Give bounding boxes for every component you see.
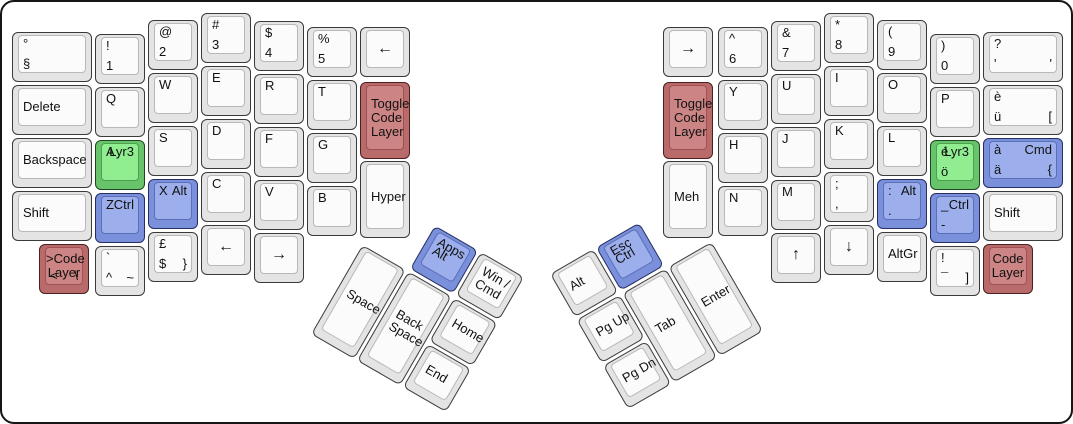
key-legend: % — [318, 32, 330, 46]
key-arrow-down-icon: ↓ — [845, 239, 853, 255]
key-arrow-left-inner-icon: ← — [377, 41, 393, 57]
key-legend: ` — [106, 251, 110, 265]
key-legend: è — [994, 90, 1001, 104]
key-legend: Delete — [23, 100, 61, 114]
keycap-surface: ← — [207, 228, 245, 266]
keycap-surface: C — [207, 175, 245, 213]
keycap-surface: $4 — [260, 24, 298, 62]
keycap-surface: ALyr3 — [101, 143, 139, 181]
key-section[interactable]: °§ — [12, 32, 92, 82]
keycap-surface: Win /Cmd — [465, 258, 517, 310]
keycap-surface: £$} — [154, 235, 192, 273]
key-legend: Pg Up — [594, 309, 632, 339]
keycap-surface: W — [154, 76, 192, 114]
key-legend: , — [835, 197, 839, 211]
key-legend: K — [835, 124, 844, 138]
key-legend: [ — [1048, 110, 1052, 124]
key-legend: Z — [106, 198, 114, 212]
keycap-surface: J — [777, 130, 815, 168]
keycap-surface: V — [260, 183, 298, 221]
keycap-surface: F — [260, 130, 298, 168]
key-l[interactable]: L — [877, 126, 927, 176]
keycap-surface: Shift — [989, 194, 1057, 232]
key-legend: CodeLayer — [990, 252, 1026, 280]
keycap-surface: H — [724, 136, 762, 174]
key-legend: Home — [449, 316, 486, 345]
key-legend: ToggleCodeLayer — [371, 97, 401, 139]
keycap-surface: N — [724, 189, 762, 227]
key-legend: $ — [159, 257, 166, 271]
keycap-surface: AltGr — [883, 235, 921, 273]
key-legend: 4 — [265, 46, 272, 60]
key-colon-alt[interactable]: :Alt. — [877, 179, 927, 229]
keycap-surface: S — [154, 129, 192, 167]
key-legend: - — [941, 218, 945, 232]
keycap-surface: ToggleCodeLayer — [366, 85, 404, 150]
key-altgr[interactable]: AltGr — [877, 232, 927, 282]
key-v[interactable]: V — [254, 180, 304, 230]
key-legend: 7 — [782, 46, 789, 60]
key-legend: C — [212, 177, 221, 191]
key-legend: P — [941, 92, 950, 106]
keycap-surface: ToggleCodeLayer — [669, 85, 707, 150]
keycap-surface: Meh — [669, 164, 707, 229]
key-legend: B — [318, 191, 327, 205]
keycap-surface: → — [669, 30, 707, 68]
key-legend: ö — [941, 165, 948, 179]
key-semicolon[interactable]: ;, — [824, 172, 874, 222]
key-legend: Alt — [901, 184, 916, 198]
key-legend: ^ — [106, 271, 112, 285]
keycap-surface: AppsAlt — [419, 231, 471, 283]
key-arrow-right-bottom-icon: → — [271, 247, 287, 263]
keycap-surface: E — [207, 69, 245, 107]
key-legend: 9 — [888, 45, 895, 59]
keycap-surface: @2 — [154, 23, 192, 61]
key-legend: Lyr3 — [109, 145, 134, 159]
key-legend: N — [729, 191, 738, 205]
key-arrow-right-bottom[interactable]: → — [254, 233, 304, 283]
key-legend: Y — [729, 85, 738, 99]
key-legend: _ — [941, 198, 948, 212]
key-legend: V — [265, 185, 274, 199]
keycap-surface: `^~ — [101, 249, 139, 287]
key-arrow-left-inner[interactable]: ← — [360, 27, 410, 77]
key-g[interactable]: G — [307, 133, 357, 183]
keycap-surface: P — [936, 90, 974, 128]
key-legend: ' — [1050, 57, 1052, 71]
keycap-surface: → — [260, 236, 298, 274]
keycap-surface: Alt — [557, 255, 609, 307]
key-delete[interactable]: Delete — [12, 85, 92, 135]
keycap-surface: Backspace — [18, 141, 86, 179]
key-underscore-ctrl[interactable]: _Ctrl- — [930, 193, 980, 243]
keycap-surface: D — [207, 122, 245, 160]
key-8[interactable]: *8 — [824, 13, 874, 63]
keycap-surface: %5 — [313, 30, 351, 68]
key-legend: D — [212, 124, 221, 138]
keycap-surface: &7 — [777, 24, 815, 62]
keycap-surface: T — [313, 83, 351, 121]
key-legend: Alt — [172, 184, 187, 198]
key-w[interactable]: W — [148, 73, 198, 123]
key-legend: 5 — [318, 52, 325, 66]
key-b[interactable]: B — [307, 186, 357, 236]
keycap-surface: Shift — [18, 194, 86, 232]
keyboard-canvas: °§DeleteBackspaceShift<\>CodeLayer!1QALy… — [0, 0, 1073, 424]
key-legend: W — [159, 78, 171, 92]
key-shift-left[interactable]: Shift — [12, 191, 92, 241]
key-2[interactable]: @2 — [148, 20, 198, 70]
keycap-surface: (9 — [883, 23, 921, 61]
key-a-lyr3[interactable]: ALyr3 — [95, 140, 145, 190]
key-f[interactable]: F — [254, 127, 304, 177]
key-legend: Meh — [674, 190, 699, 204]
key-legend: ( — [888, 25, 892, 39]
key-u[interactable]: U — [771, 74, 821, 124]
key-legend: } — [183, 257, 187, 271]
keycap-surface: EscCtrl — [603, 228, 655, 280]
key-legend: J — [782, 132, 789, 146]
key-shift-right[interactable]: Shift — [983, 191, 1063, 241]
key-grave[interactable]: `^~ — [95, 246, 145, 296]
keycap-surface: ↑ — [777, 236, 815, 274]
keycap-surface: _Ctrl- — [936, 196, 974, 234]
key-legend: Shift — [23, 206, 49, 220]
key-legend: Q — [106, 92, 116, 106]
key-a-grave-cmd[interactable]: àCmdä{ — [983, 138, 1063, 188]
key-code-layer-right[interactable]: CodeLayer — [983, 244, 1033, 294]
keycap-surface: Delete — [18, 88, 86, 126]
key-backspace[interactable]: Backspace — [12, 138, 92, 188]
key-legend: . — [888, 204, 892, 218]
keycap-surface: B — [313, 189, 351, 227]
keycap-surface: U — [777, 77, 815, 115]
key-i[interactable]: I — [824, 66, 874, 116]
key-legend: 6 — [729, 52, 736, 66]
key-k[interactable]: K — [824, 119, 874, 169]
key-toggle-code-layer-left[interactable]: ToggleCodeLayer — [360, 82, 410, 159]
key-legend: ' — [994, 57, 996, 71]
keycap-surface: *8 — [830, 16, 868, 54]
key-1[interactable]: !1 — [95, 34, 145, 84]
key-legend: Space — [344, 286, 383, 317]
key-code-layer-left[interactable]: <\>CodeLayer — [39, 244, 89, 294]
key-legend: 0 — [941, 59, 948, 73]
key-apostrophe[interactable]: ?'' — [983, 32, 1063, 82]
key-legend: ToggleCodeLayer — [674, 97, 704, 139]
key-legend: § — [23, 57, 30, 71]
keycap-surface: ?'' — [989, 35, 1057, 73]
key-arrow-up-icon: ↑ — [792, 247, 800, 263]
keycap-surface: CodeLayer — [989, 247, 1027, 285]
keycap-surface: Hyper — [366, 164, 404, 229]
keycap-surface: XAlt — [154, 182, 192, 220]
key-0[interactable]: )0 — [930, 34, 980, 84]
key-arrow-left-bottom-icon: ← — [218, 239, 234, 255]
keycap-surface: I — [830, 69, 868, 107]
key-legend: 3 — [212, 38, 219, 52]
key-legend: Backspace — [23, 153, 87, 167]
keycap-surface: !1 — [101, 37, 139, 75]
key-legend: T — [318, 85, 326, 99]
keycap-surface: ^6 — [724, 30, 762, 68]
key-legend: ¯ — [941, 271, 948, 285]
key-legend: AltGr — [888, 247, 918, 261]
key-legend: Enter — [699, 282, 733, 310]
key-arrow-right-inner-icon: → — [680, 41, 696, 57]
key-legend: & — [782, 26, 791, 40]
key-legend: S — [159, 131, 168, 145]
key-legend: Shift — [994, 206, 1020, 220]
keycap-surface: éLyr3ö — [936, 143, 974, 181]
key-legend: X — [159, 184, 168, 198]
key-legend: ä — [994, 163, 1001, 177]
keycap-surface: :Alt. — [883, 182, 921, 220]
key-legend: ~ — [126, 271, 134, 285]
key-legend: R — [265, 79, 274, 93]
key-legend: Alt — [567, 274, 587, 294]
key-c[interactable]: C — [201, 172, 251, 222]
key-9[interactable]: (9 — [877, 20, 927, 70]
key-n[interactable]: N — [718, 186, 768, 236]
key-legend: à — [994, 143, 1001, 157]
key-4[interactable]: $4 — [254, 21, 304, 71]
key-e[interactable]: E — [201, 66, 251, 116]
key-5[interactable]: %5 — [307, 27, 357, 77]
keycap-surface: °§ — [18, 35, 86, 73]
key-pound[interactable]: £$} — [148, 232, 198, 282]
key-legend: ; — [835, 177, 839, 191]
keycap-surface: !¯] — [936, 249, 974, 287]
key-legend: Hyper — [371, 190, 406, 204]
keycap-surface: Q — [101, 90, 139, 128]
key-arrow-left-bottom[interactable]: ← — [201, 225, 251, 275]
key-legend: F — [265, 132, 273, 146]
key-arrow-down[interactable]: ↓ — [824, 225, 874, 275]
key-legend: ° — [23, 37, 28, 51]
key-exclamation[interactable]: !¯] — [930, 246, 980, 296]
keycap-surface: O — [883, 76, 921, 114]
key-legend: E — [212, 71, 221, 85]
key-h[interactable]: H — [718, 133, 768, 183]
key-j[interactable]: J — [771, 127, 821, 177]
key-legend: 8 — [835, 38, 842, 52]
key-legend: Lyr3 — [944, 145, 969, 159]
key-s[interactable]: S — [148, 126, 198, 176]
keycap-surface: )0 — [936, 37, 974, 75]
key-p[interactable]: P — [930, 87, 980, 137]
keycap-surface: ZCtrl — [101, 196, 139, 234]
keycap-surface: ↓ — [830, 228, 868, 266]
key-legend: G — [318, 138, 328, 152]
key-legend: ^ — [729, 32, 735, 46]
key-t[interactable]: T — [307, 80, 357, 130]
key-m[interactable]: M — [771, 180, 821, 230]
key-6[interactable]: ^6 — [718, 27, 768, 77]
key-legend: 2 — [159, 45, 166, 59]
key-legend: ] — [965, 271, 969, 285]
keycap-surface: #3 — [207, 16, 245, 54]
key-legend: >CodeLayer — [46, 252, 82, 280]
key-legend: ? — [994, 37, 1001, 51]
key-3[interactable]: #3 — [201, 13, 251, 63]
key-legend: $ — [265, 26, 272, 40]
key-arrow-up[interactable]: ↑ — [771, 233, 821, 283]
key-legend: ü — [994, 110, 1001, 124]
key-legend: Pg Dn — [620, 355, 658, 385]
key-legend: @ — [159, 25, 172, 39]
key-legend: ! — [941, 251, 945, 265]
key-legend: O — [888, 78, 898, 92]
keycap-surface: <\>CodeLayer — [45, 247, 83, 285]
keycap-surface: L — [883, 129, 921, 167]
key-z-ctrl[interactable]: ZCtrl — [95, 193, 145, 243]
keycap-surface: àCmdä{ — [989, 141, 1057, 179]
key-legend: M — [782, 185, 793, 199]
key-toggle-code-layer-right[interactable]: ToggleCodeLayer — [663, 82, 713, 159]
key-e-acute-lyr3[interactable]: éLyr3ö — [930, 140, 980, 190]
keycap-surface: Pg Dn — [610, 346, 662, 398]
key-arrow-right-inner[interactable]: → — [663, 27, 713, 77]
keycap-surface: R — [260, 77, 298, 115]
key-o[interactable]: O — [877, 73, 927, 123]
keycap-surface: Y — [724, 83, 762, 121]
key-legend: ) — [941, 39, 945, 53]
key-legend: { — [1048, 163, 1052, 177]
key-y[interactable]: Y — [718, 80, 768, 130]
key-legend: Win /Cmd — [472, 264, 512, 303]
keycap-surface: M — [777, 183, 815, 221]
key-legend: End — [422, 362, 449, 386]
keycap-surface: Pg Up — [583, 300, 635, 352]
key-legend: ! — [106, 39, 110, 53]
keycap-surface: èü[ — [989, 88, 1057, 126]
key-q[interactable]: Q — [95, 87, 145, 137]
key-legend: U — [782, 79, 791, 93]
key-x-alt[interactable]: XAlt — [148, 179, 198, 229]
keycap-surface: K — [830, 122, 868, 160]
key-legend: # — [212, 18, 219, 32]
key-legend: Ctrl — [949, 198, 969, 212]
key-meh[interactable]: Meh — [663, 161, 713, 238]
key-legend: I — [835, 71, 839, 85]
keycap-surface: ;, — [830, 175, 868, 213]
keycap-surface: G — [313, 136, 351, 174]
key-legend: BackSpace — [386, 307, 426, 346]
key-legend: £ — [159, 237, 166, 251]
key-legend: Ctrl — [114, 198, 134, 212]
key-legend: : — [888, 184, 892, 198]
key-legend: L — [888, 131, 895, 145]
key-e-grave[interactable]: èü[ — [983, 85, 1063, 135]
key-hyper[interactable]: Hyper — [360, 161, 410, 238]
key-r[interactable]: R — [254, 74, 304, 124]
key-legend: 1 — [106, 59, 113, 73]
key-legend: Cmd — [1025, 143, 1052, 157]
key-d[interactable]: D — [201, 119, 251, 169]
key-legend: * — [835, 18, 840, 32]
key-legend: Tab — [653, 313, 678, 336]
keycap-surface: ← — [366, 30, 404, 68]
key-legend: H — [729, 138, 738, 152]
key-7[interactable]: &7 — [771, 21, 821, 71]
